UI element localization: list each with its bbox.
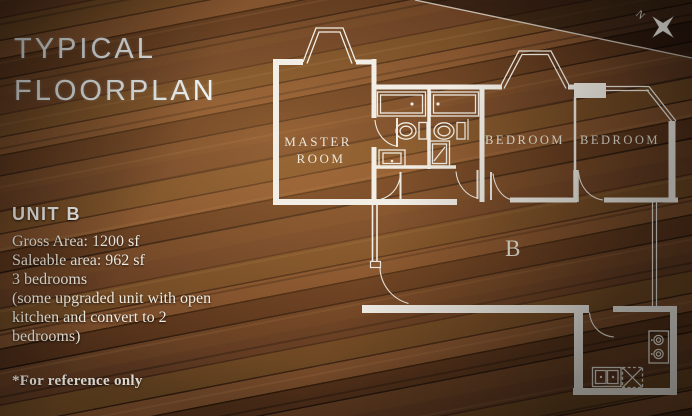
bedroom2-door-icon xyxy=(578,172,604,200)
kitchen-sink-icon xyxy=(593,368,622,387)
floorplan-poster: TYPICAL FLOORPLAN UNIT B Gross Area: 120… xyxy=(0,0,692,416)
entrance-door-icon xyxy=(371,262,409,304)
basin-icon xyxy=(379,150,405,167)
ensuite-door-icon xyxy=(375,118,397,147)
shower-icon xyxy=(430,141,450,167)
bedroom1-label: BEDROOM xyxy=(485,133,565,147)
unit-letter-label: B xyxy=(505,236,523,261)
bathtub1-icon xyxy=(378,92,426,116)
master-bay-window-icon xyxy=(303,28,356,62)
bedroom2-corner-window-icon xyxy=(649,87,676,122)
walls xyxy=(276,59,678,392)
toilet2-icon xyxy=(434,119,468,140)
master-room-label: MASTER ROOM xyxy=(284,134,357,166)
corridor-door-left-icon xyxy=(377,172,401,201)
kitchen-door-icon xyxy=(590,313,615,338)
toilet1-icon xyxy=(396,123,427,140)
bathtub2-icon xyxy=(431,92,479,116)
bedroom1-door-icon xyxy=(491,172,513,200)
room-labels: MASTER ROOM BEDROOM BEDROOM B xyxy=(284,133,660,261)
doors xyxy=(371,118,615,337)
bathroom2-door-icon xyxy=(456,170,478,199)
washer-icon xyxy=(623,368,643,388)
stove-icon xyxy=(649,331,669,363)
bedroom1-bay-window-icon xyxy=(500,51,570,87)
table-edge xyxy=(415,0,692,58)
bedroom2-label: BEDROOM xyxy=(580,133,660,147)
floorplan-drawing: MASTER ROOM BEDROOM BEDROOM B N xyxy=(0,0,692,416)
